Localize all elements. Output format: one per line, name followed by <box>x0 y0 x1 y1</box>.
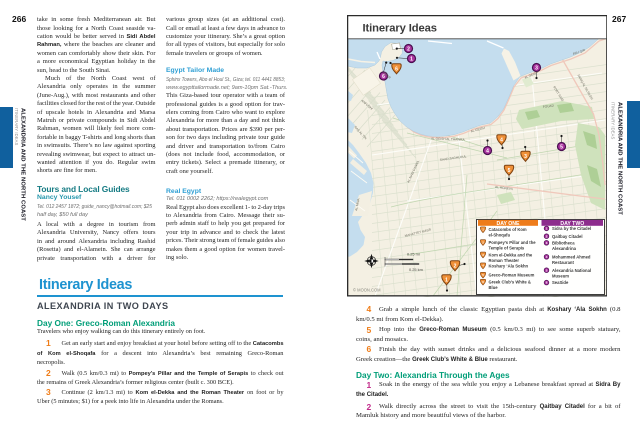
svg-text:Qaitbay Citadel: Qaitbay Citadel <box>552 234 582 239</box>
svg-text:2: 2 <box>407 46 410 52</box>
svg-text:Bibliotheca: Bibliotheca <box>552 240 575 245</box>
svg-text:5: 5 <box>507 168 510 174</box>
svg-text:Alexandrina: Alexandrina <box>552 246 577 251</box>
svg-text:Museum: Museum <box>552 273 569 278</box>
svg-text:5: 5 <box>560 144 563 150</box>
svg-text:1: 1 <box>445 277 448 283</box>
svg-text:Mohammed Ahmed: Mohammed Ahmed <box>552 254 591 259</box>
svg-text:el-Shoqafa: el-Shoqafa <box>488 233 510 238</box>
svg-text:Koshary ‘Ala Sokhn: Koshary ‘Ala Sokhn <box>488 263 528 268</box>
svg-text:Sidra by the Citadel: Sidra by the Citadel <box>552 226 591 231</box>
svg-text:Itinerary Ideas: Itinerary Ideas <box>362 23 436 35</box>
svg-text:Greek Club’s White &: Greek Club’s White & <box>488 280 530 285</box>
svg-text:Roman Theater: Roman Theater <box>488 258 519 263</box>
svg-text:Restaurant: Restaurant <box>552 260 574 265</box>
svg-text:Temple of Serapis: Temple of Serapis <box>488 246 524 251</box>
svg-text:Pompey’s Pillar and the: Pompey’s Pillar and the <box>488 240 536 245</box>
svg-text:Kom el-Dekka and the: Kom el-Dekka and the <box>488 252 532 257</box>
svg-text:Blue: Blue <box>488 285 498 290</box>
svg-text:0.25 km: 0.25 km <box>409 267 423 272</box>
svg-text:Greco-Roman Museum: Greco-Roman Museum <box>488 273 534 278</box>
svg-text:6: 6 <box>395 66 398 72</box>
svg-text:Catacombs of Kom: Catacombs of Kom <box>488 227 526 232</box>
svg-text:2: 2 <box>453 263 456 269</box>
svg-text:Alexandria National: Alexandria National <box>552 268 591 273</box>
svg-text:1: 1 <box>410 56 413 62</box>
svg-text:SeaSide: SeaSide <box>552 280 569 285</box>
svg-text:4: 4 <box>500 137 503 143</box>
svg-text:4: 4 <box>486 148 489 154</box>
svg-text:© MOON.COM: © MOON.COM <box>353 288 381 293</box>
svg-text:0.25 mi: 0.25 mi <box>407 251 420 256</box>
svg-text:3: 3 <box>524 154 527 160</box>
svg-text:DAY ONE: DAY ONE <box>496 221 520 227</box>
